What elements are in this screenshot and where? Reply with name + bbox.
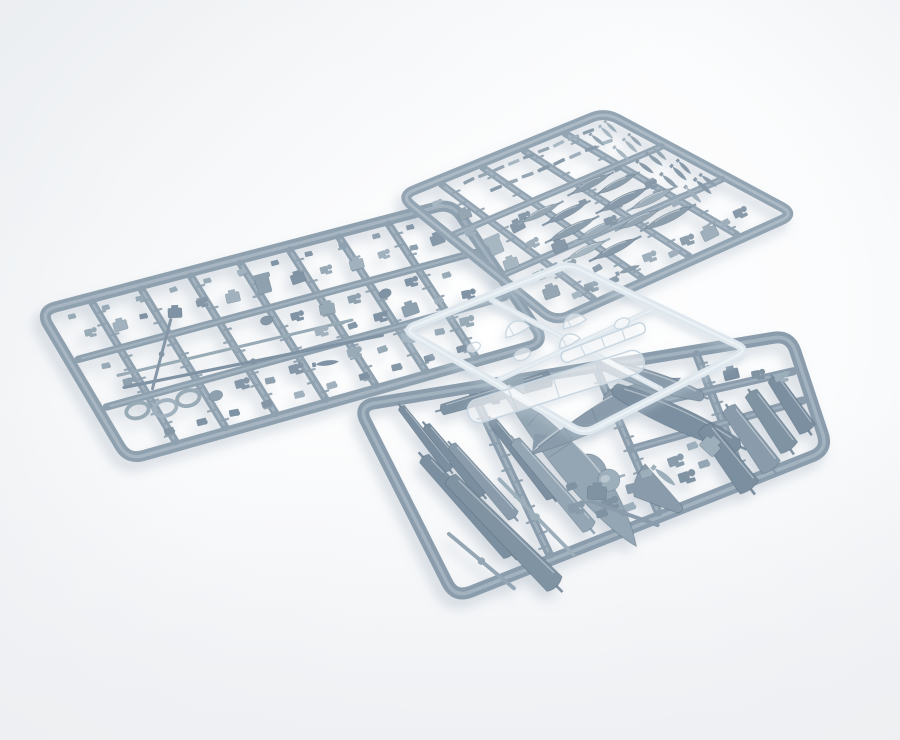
sprue-photo-canvas — [0, 0, 900, 740]
sprue-product-photo — [0, 0, 900, 740]
sprue-photo-svg — [0, 0, 900, 740]
